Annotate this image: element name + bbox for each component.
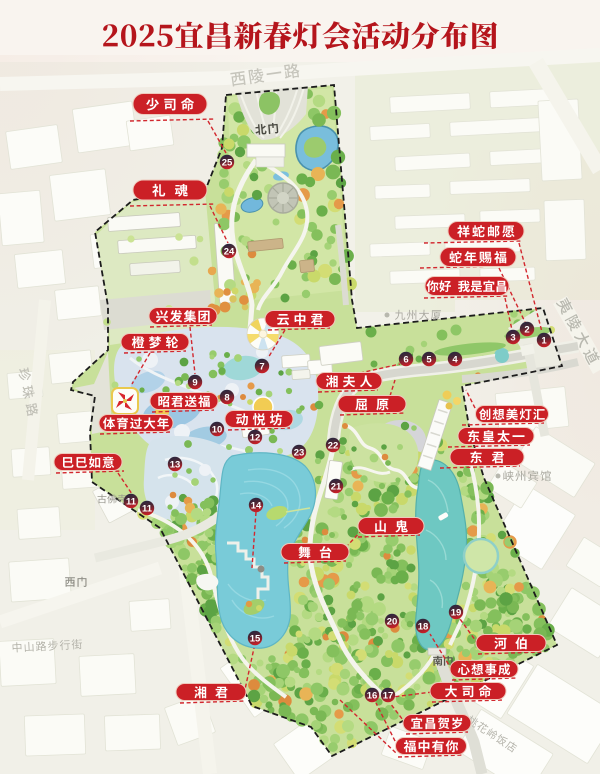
svg-text:11: 11 (126, 496, 137, 507)
svg-text:5: 5 (426, 354, 432, 365)
svg-text:9: 9 (192, 377, 197, 388)
svg-text:3: 3 (510, 332, 515, 343)
svg-text:20: 20 (387, 616, 398, 627)
svg-text:1: 1 (541, 335, 547, 346)
svg-text:22: 22 (328, 440, 339, 451)
svg-text:18: 18 (418, 621, 429, 632)
svg-text:23: 23 (294, 447, 305, 458)
svg-text:4: 4 (452, 354, 458, 365)
svg-text:15: 15 (250, 633, 261, 644)
svg-text:7: 7 (259, 361, 264, 372)
svg-text:11: 11 (142, 503, 153, 514)
svg-text:10: 10 (212, 424, 223, 435)
svg-text:6: 6 (403, 354, 408, 365)
svg-text:16: 16 (367, 690, 378, 701)
svg-text:12: 12 (250, 432, 261, 443)
svg-text:21: 21 (331, 481, 342, 492)
svg-text:13: 13 (170, 459, 181, 470)
svg-text:25: 25 (222, 157, 233, 168)
svg-text:17: 17 (383, 690, 394, 701)
svg-text:2: 2 (524, 324, 529, 335)
svg-text:24: 24 (224, 246, 235, 257)
svg-text:8: 8 (224, 392, 229, 403)
svg-text:14: 14 (251, 500, 262, 511)
svg-text:19: 19 (451, 607, 462, 618)
